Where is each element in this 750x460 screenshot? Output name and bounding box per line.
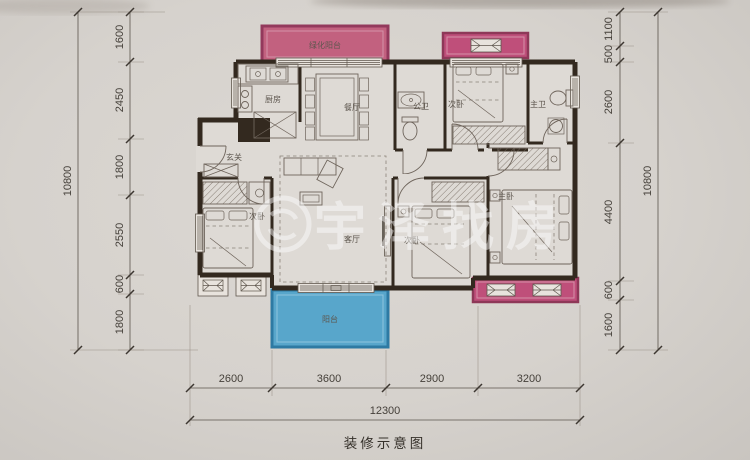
svg-text:2600: 2600 bbox=[219, 373, 243, 385]
window-master-bath bbox=[571, 76, 580, 108]
svg-text:2900: 2900 bbox=[420, 373, 444, 385]
svg-text:600: 600 bbox=[603, 281, 615, 299]
floor-plan-figure: 绿化阳台 阳台 bbox=[0, 0, 750, 460]
public-bath-label: 公卫 bbox=[413, 102, 429, 111]
window-icon bbox=[471, 39, 501, 52]
window-top-right bbox=[450, 58, 522, 67]
green-balcony-label: 绿化阳台 bbox=[309, 40, 341, 50]
dining-label: 餐厅 bbox=[344, 103, 360, 112]
green-balcony: 绿化阳台 bbox=[262, 26, 388, 62]
dimension-bottom-outer: 12300 bbox=[186, 405, 584, 424]
balcony-label: 阳台 bbox=[322, 314, 338, 324]
dim-right-total: 10800 bbox=[642, 166, 654, 197]
dimension-right-outer: 10800 bbox=[634, 8, 668, 354]
svg-text:1800: 1800 bbox=[114, 155, 126, 179]
svg-text:600: 600 bbox=[114, 275, 126, 293]
svg-text:500: 500 bbox=[603, 45, 615, 63]
bedroom-top-label: 次卧 bbox=[448, 99, 464, 109]
svg-text:1800: 1800 bbox=[114, 310, 126, 334]
south-balcony: 阳台 bbox=[272, 290, 388, 347]
watermark-brand: 宇泽找房 bbox=[314, 199, 570, 257]
dimension-left-segments: 1600 2450 1800 2550 600 1800 bbox=[114, 8, 144, 354]
master-bath-label: 主卫 bbox=[530, 99, 546, 109]
svg-text:3200: 3200 bbox=[517, 373, 541, 385]
bay-window-top-right bbox=[443, 33, 528, 58]
balcony-door-south bbox=[298, 284, 374, 293]
bay-window-left-1 bbox=[198, 275, 228, 296]
dim-left-total: 10800 bbox=[62, 166, 74, 197]
caption: 装修示意图 bbox=[344, 435, 427, 451]
kitchen-label: 厨房 bbox=[265, 94, 281, 104]
svg-text:1600: 1600 bbox=[603, 313, 615, 337]
window-kitchen-west bbox=[232, 78, 241, 108]
bay-window-bottom-right bbox=[473, 278, 578, 302]
entry-label: 玄关 bbox=[226, 152, 242, 162]
dim-bottom-total: 12300 bbox=[370, 405, 401, 417]
balcony-door-top bbox=[276, 58, 382, 67]
svg-text:2450: 2450 bbox=[114, 88, 126, 112]
dimension-right-segments: 1100 500 2600 4400 600 1600 bbox=[603, 8, 634, 354]
svg-text:1600: 1600 bbox=[114, 25, 126, 49]
svg-text:2600: 2600 bbox=[603, 90, 615, 114]
svg-text:1100: 1100 bbox=[603, 17, 615, 41]
svg-text:4400: 4400 bbox=[603, 200, 615, 224]
bay-window-left-2 bbox=[236, 275, 266, 296]
svg-text:2550: 2550 bbox=[114, 223, 126, 247]
svg-text:3600: 3600 bbox=[317, 373, 341, 385]
